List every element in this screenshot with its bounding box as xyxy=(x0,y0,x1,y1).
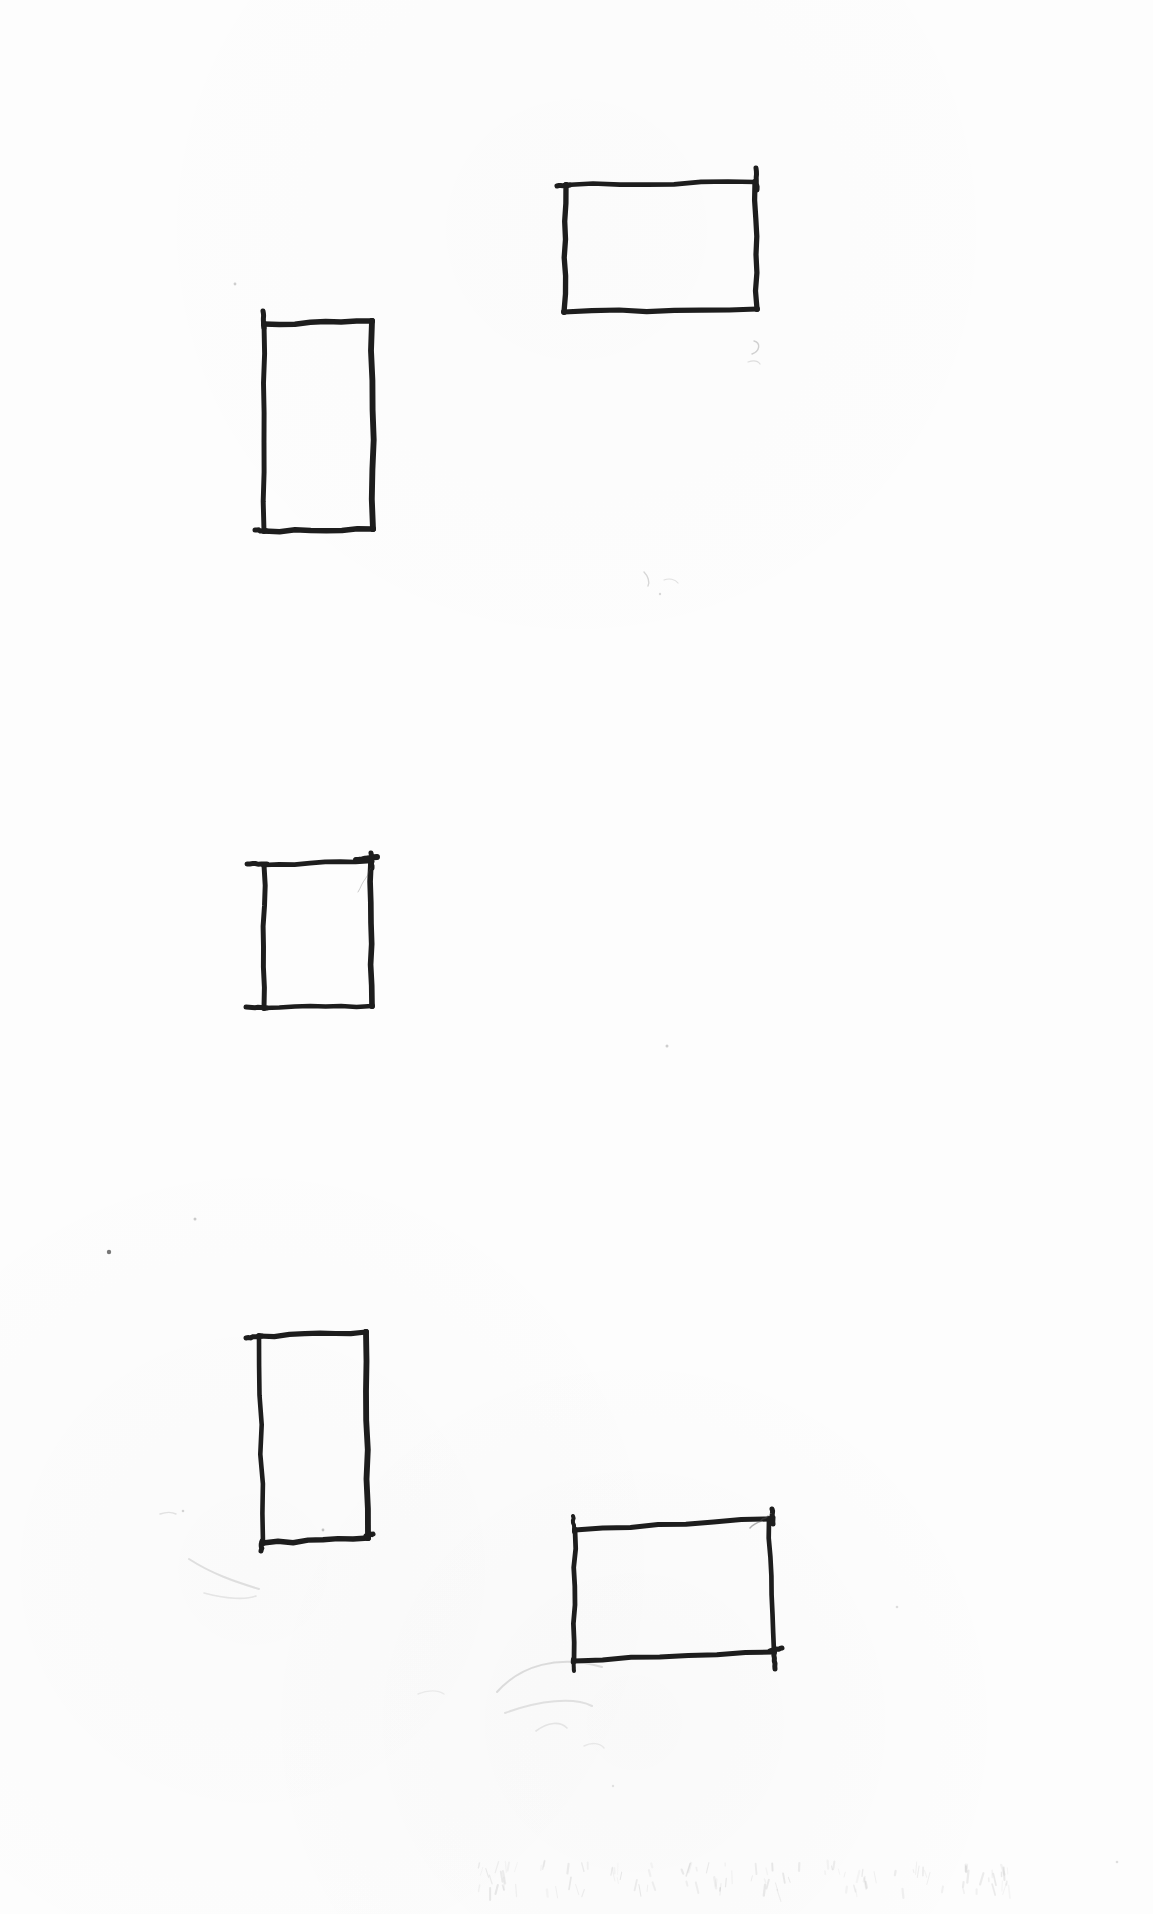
hand-drawn-sketch-canvas xyxy=(0,0,1153,1914)
scanned-paper-page xyxy=(0,0,1153,1914)
